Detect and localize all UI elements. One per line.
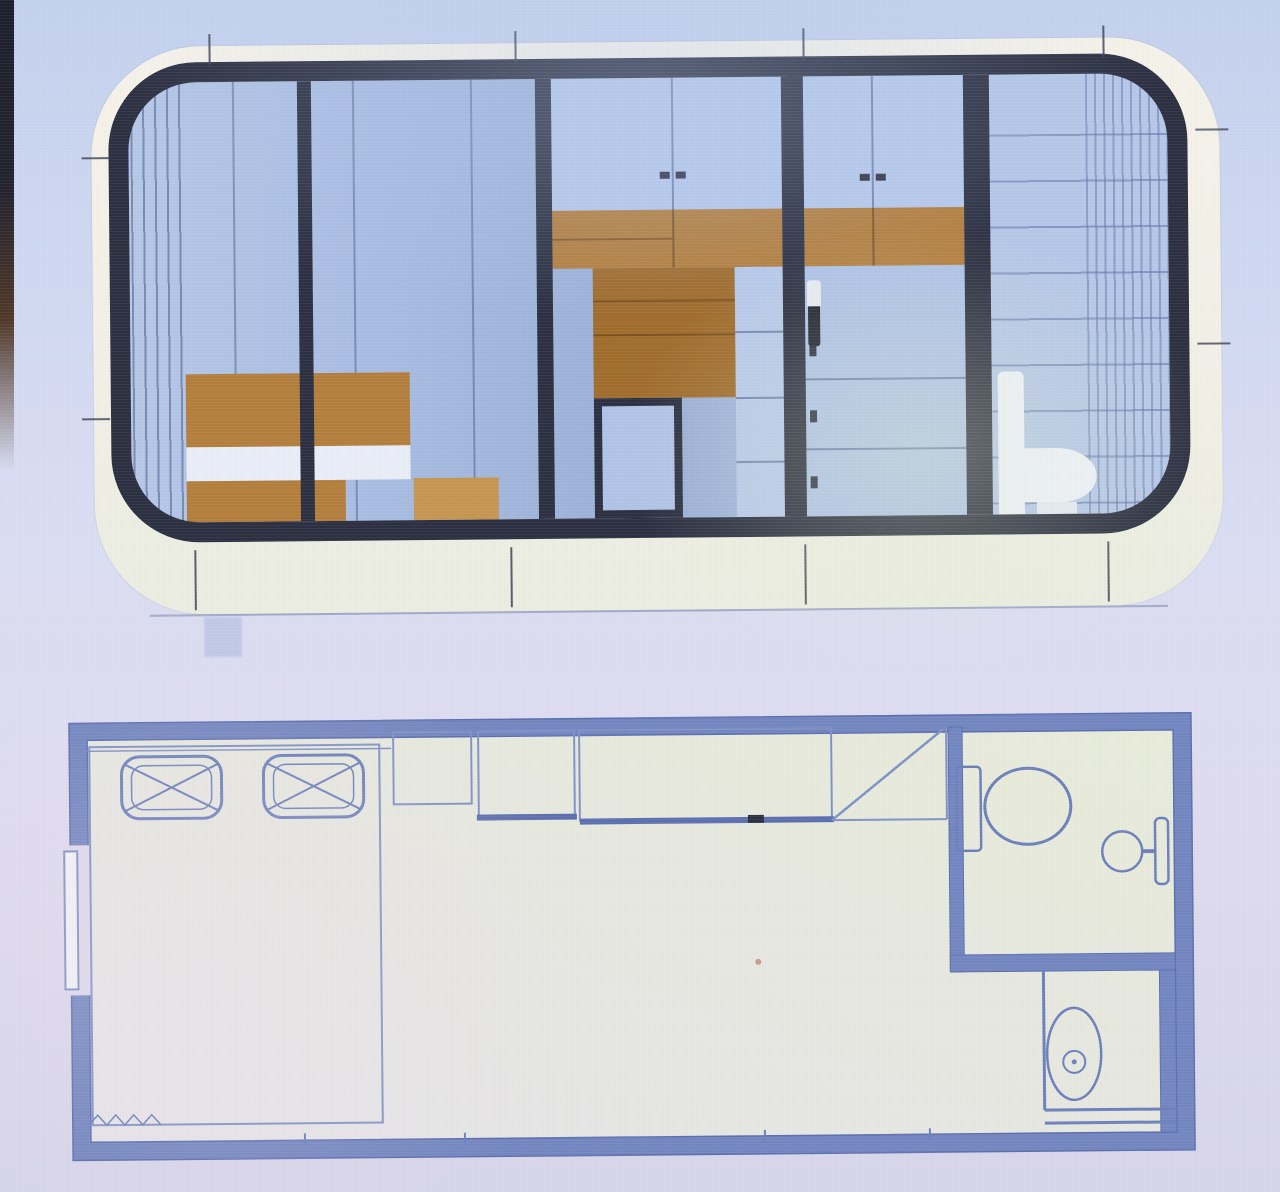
stall-bottom (832, 819, 947, 820)
bathroom-wall-bottom (950, 953, 1175, 972)
dimension-tick (82, 157, 110, 159)
dimension-tick (208, 34, 210, 66)
screen-photo (0, 0, 1280, 1192)
drawing-canvas (0, 0, 1280, 1192)
nook-bottom-line (1045, 1109, 1177, 1110)
cabinet-front-line (477, 817, 577, 818)
cabinet-front-line (580, 819, 834, 821)
dimension-tick (1195, 128, 1228, 130)
photo-artifact (755, 959, 761, 965)
dimension-tick (1197, 342, 1230, 344)
floor-plan (61, 705, 1200, 1166)
dimension-tick (514, 31, 516, 63)
cabinet-mark (748, 815, 764, 823)
stall-edge (946, 727, 947, 819)
dimension-tick (82, 418, 110, 420)
nook-bottom-line (1045, 1122, 1177, 1123)
nook-wall (1043, 971, 1044, 1110)
dimension-tick (802, 28, 804, 60)
plan-floor-tint (87, 730, 1177, 1142)
photo-edge-dark (0, 0, 14, 470)
window-frame (108, 53, 1192, 543)
base-shadow (204, 617, 242, 657)
dimension-tick (1102, 26, 1104, 58)
entry-door-leaf (64, 851, 78, 989)
bathroom-wall-left (948, 727, 964, 972)
